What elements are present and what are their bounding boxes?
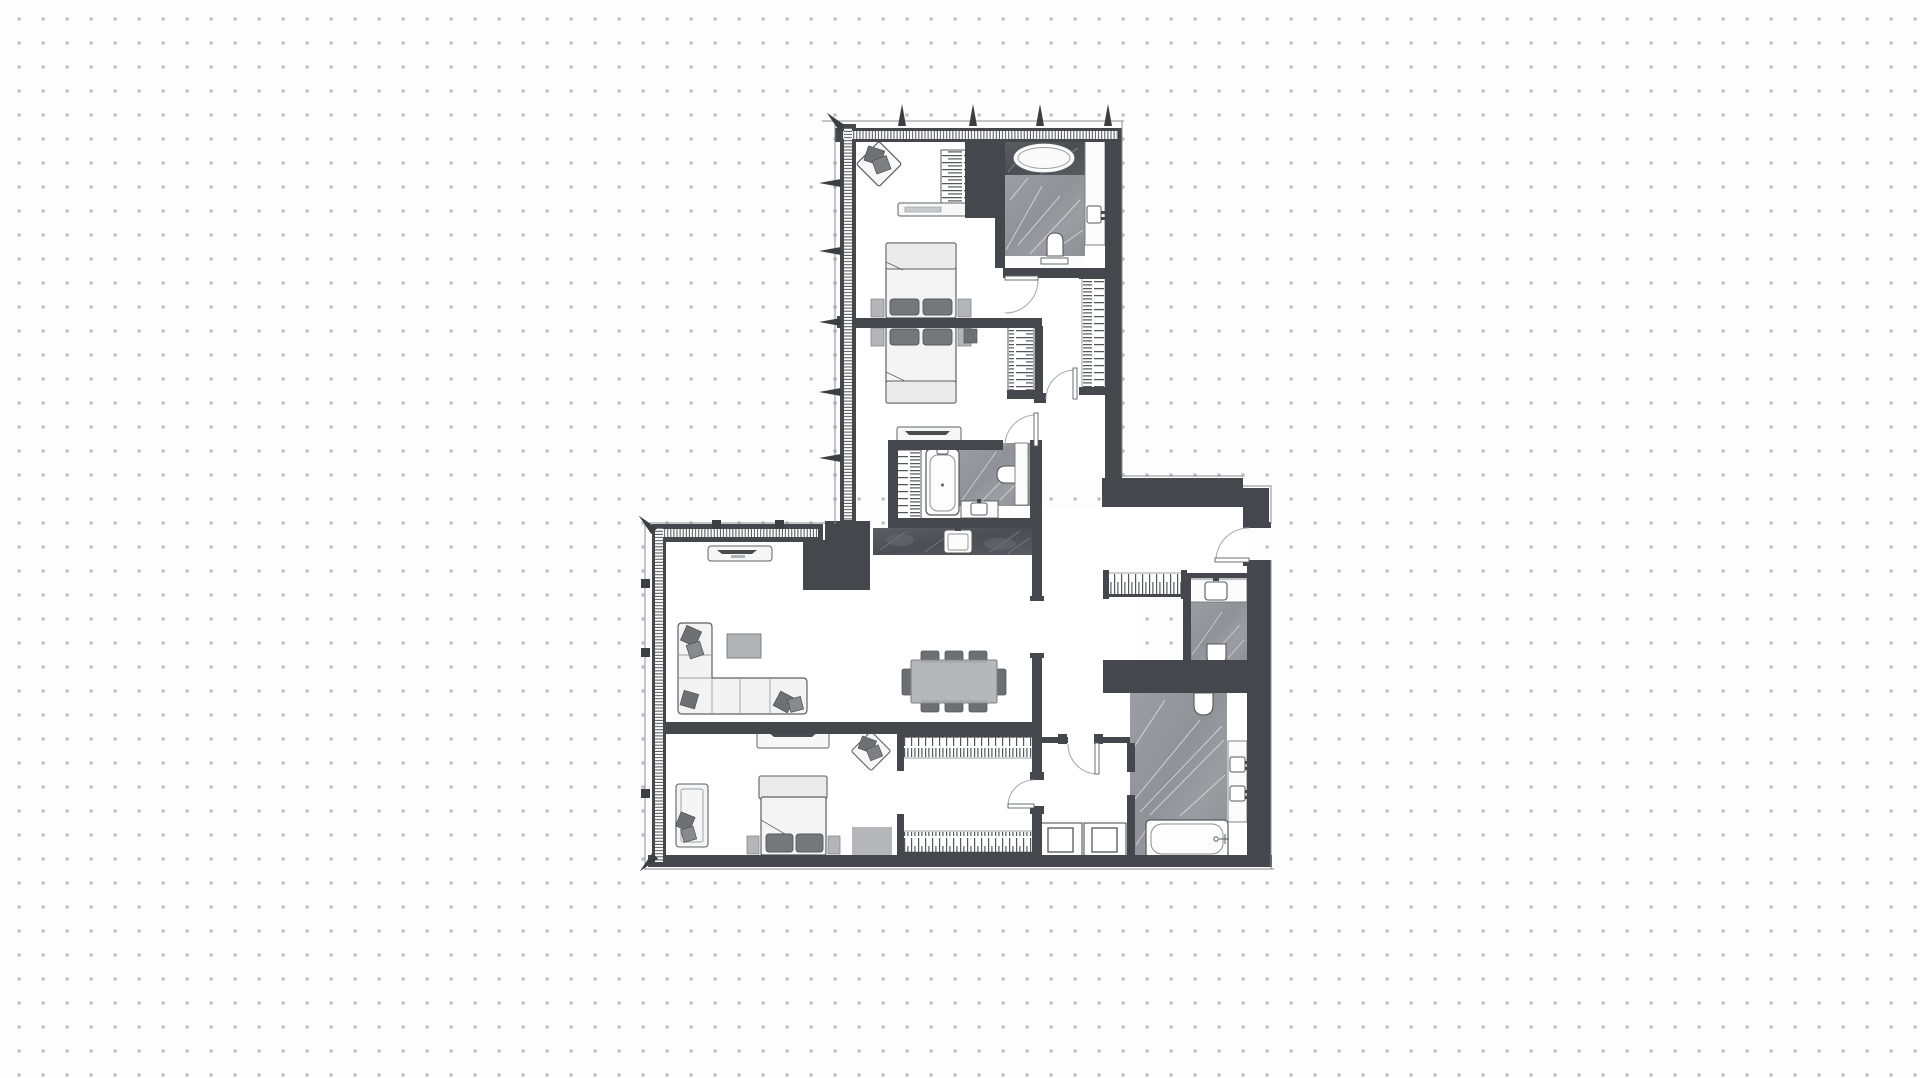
page-background [0, 0, 1920, 1078]
wall-bedroom3-divider [652, 722, 1042, 734]
bathtub-icon [1146, 820, 1228, 858]
mullion-markers-top [824, 104, 1112, 131]
ensuite-vanity [1085, 141, 1105, 245]
nightstand [871, 299, 884, 317]
bed-pillow [890, 299, 919, 315]
tv-console [708, 546, 772, 561]
master-desk [898, 203, 968, 216]
mullion-markers-left [819, 179, 841, 462]
familybath-tub [926, 446, 959, 515]
master-tub [1146, 820, 1229, 858]
kitchen [944, 526, 972, 553]
sofa-pillow [788, 696, 804, 712]
sink-icon [1230, 757, 1245, 772]
closet-row-north [903, 734, 1033, 758]
bed-pillow [796, 834, 823, 852]
bed-pillow [923, 299, 952, 315]
bedroom2-wardrobe [1007, 327, 1035, 399]
nightstand [958, 299, 971, 317]
coffee-table [727, 634, 761, 658]
bed-bench [759, 776, 827, 799]
ensuite-floor-marble [1003, 175, 1085, 268]
wall-rightwing-top [1102, 478, 1243, 507]
familybath-sink-unit [961, 499, 998, 518]
entry-shelf [1103, 570, 1187, 599]
bedroom2-dresser [897, 427, 961, 442]
wall-right-upper [1105, 140, 1122, 478]
closet-row-south [903, 831, 1033, 856]
sink-icon [1205, 582, 1227, 600]
toilet-icon [1047, 233, 1063, 256]
master-closet [941, 150, 966, 206]
bedroom3-bed [747, 776, 840, 855]
dining-set [902, 651, 1006, 712]
stool [964, 329, 977, 343]
corridor-wardrobe [1079, 273, 1106, 395]
chaise-lounge [676, 784, 708, 847]
bed-pillow [890, 329, 919, 345]
bed-pillow [766, 834, 793, 852]
dining-table [911, 660, 997, 703]
sink-icon [1087, 206, 1101, 223]
rug [852, 827, 892, 855]
toilet-icon [1194, 693, 1213, 715]
bed-pillow [923, 329, 952, 345]
floor-plan [628, 96, 1292, 878]
sink-icon [1230, 786, 1245, 801]
master-bed [871, 243, 971, 318]
wall-bedroom-divider [842, 318, 1042, 328]
nightstand [828, 836, 840, 854]
familybath-wardrobe [895, 450, 921, 521]
familybath-vanity [1015, 443, 1028, 505]
wall-right-outer [1247, 560, 1271, 867]
wall-bottom [648, 855, 1272, 867]
toilet-shelf [1041, 258, 1068, 264]
sink-icon [971, 503, 987, 515]
nightstand [871, 328, 884, 346]
double-vanity [1228, 741, 1250, 822]
nightstand [747, 836, 759, 854]
toilet-icon [997, 466, 1017, 483]
floor-plan-container [628, 96, 1292, 878]
entry-floor [1104, 507, 1247, 579]
